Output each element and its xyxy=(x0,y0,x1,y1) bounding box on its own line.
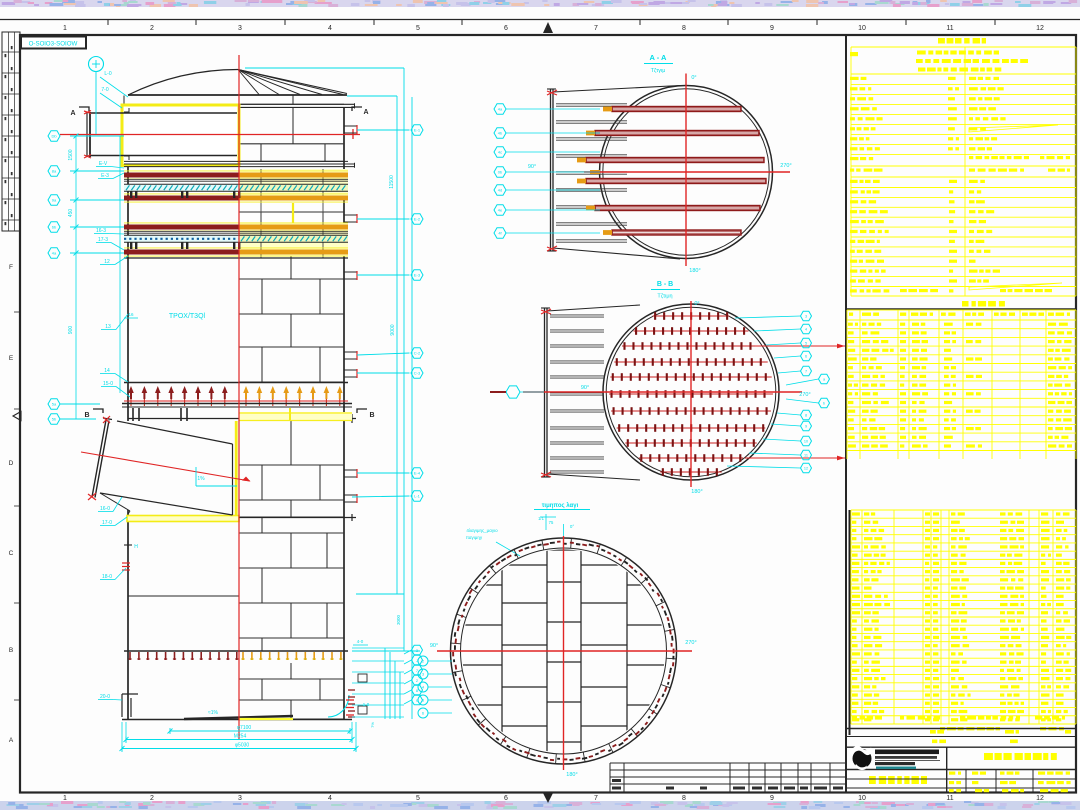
svg-text:D: D xyxy=(9,460,14,467)
svg-text:B: B xyxy=(9,647,13,654)
svg-text:180°: 180° xyxy=(566,772,577,778)
svg-text:8: 8 xyxy=(805,414,807,418)
svg-text:Tζτγιμ: Tζτγιμ xyxy=(651,68,666,74)
svg-text:9: 9 xyxy=(805,425,807,429)
svg-text:TPOX/T3Ql: TPOX/T3Ql xyxy=(169,313,206,320)
svg-text:1: 1 xyxy=(63,795,67,802)
svg-text:B: B xyxy=(84,412,89,419)
svg-text:8a: 8a xyxy=(52,169,57,174)
svg-text:4a: 4a xyxy=(52,251,57,256)
svg-text:4c: 4c xyxy=(498,150,502,155)
svg-text:12: 12 xyxy=(804,467,808,471)
svg-text:φ5030: φ5030 xyxy=(235,743,250,749)
svg-text:9a: 9a xyxy=(52,198,57,203)
svg-text:E: E xyxy=(9,355,14,362)
svg-text:8: 8 xyxy=(682,25,686,32)
svg-text:4λαγιμης_μαγιο: 4λαγιμης_μαγιο xyxy=(466,528,498,533)
svg-text:C-2: C-2 xyxy=(414,351,421,356)
svg-text:4b: 4b xyxy=(498,131,503,136)
svg-text:90°: 90° xyxy=(430,643,438,649)
svg-text:0°: 0° xyxy=(691,75,696,81)
svg-text:0b: 0b xyxy=(498,170,503,175)
svg-text:270°: 270° xyxy=(780,163,791,169)
svg-text:L-0: L-0 xyxy=(104,71,111,77)
svg-text:E-1: E-1 xyxy=(414,128,421,133)
svg-text:Tζτιμη: Tζτιμη xyxy=(657,294,672,300)
svg-text:M254: M254 xyxy=(234,734,247,740)
svg-text:F: F xyxy=(9,264,13,271)
svg-text:9000: 9000 xyxy=(390,324,396,335)
svg-text:E-2: E-2 xyxy=(414,217,421,222)
svg-text:270°: 270° xyxy=(685,640,696,646)
svg-text:τιμηπος λαγι: τιμηπος λαγι xyxy=(542,503,579,509)
svg-text:0°: 0° xyxy=(570,524,575,529)
svg-text:5: 5 xyxy=(416,25,420,32)
svg-text:90°: 90° xyxy=(581,385,589,391)
svg-text:7%: 7% xyxy=(370,722,375,728)
svg-text:4: 4 xyxy=(328,25,332,32)
svg-text:900: 900 xyxy=(68,326,74,335)
svg-text:6: 6 xyxy=(504,25,508,32)
svg-text:5: 5 xyxy=(805,342,807,346)
svg-text:180°: 180° xyxy=(691,489,702,495)
svg-text:1: 1 xyxy=(63,25,67,32)
svg-text:10: 10 xyxy=(804,440,808,444)
svg-text:3: 3 xyxy=(805,315,807,319)
svg-text:E-4: E-4 xyxy=(414,471,421,476)
svg-text:Db: Db xyxy=(51,134,57,139)
svg-text:1/1: 1/1 xyxy=(538,516,544,521)
svg-text:παγιμηγ: παγιμηγ xyxy=(466,535,483,540)
svg-text:12: 12 xyxy=(1036,25,1044,32)
svg-text:8: 8 xyxy=(682,795,686,802)
svg-text:A: A xyxy=(70,110,75,117)
svg-text:450: 450 xyxy=(68,209,74,218)
svg-text:C: C xyxy=(9,550,14,557)
svg-text:5b: 5b xyxy=(52,417,57,422)
svg-text:90°: 90° xyxy=(528,164,536,170)
svg-text:11: 11 xyxy=(946,795,953,802)
svg-text:3000: 3000 xyxy=(396,614,401,625)
svg-text:2: 2 xyxy=(150,795,154,802)
svg-text:4d: 4d xyxy=(498,188,502,193)
svg-text:1%: 1% xyxy=(197,476,205,482)
svg-text:7-0: 7-0 xyxy=(101,87,108,93)
svg-text:10: 10 xyxy=(858,795,866,802)
svg-text:180°: 180° xyxy=(689,268,700,274)
svg-text:6: 6 xyxy=(805,355,807,359)
svg-text:270°: 270° xyxy=(799,392,810,398)
svg-text:B - B: B - B xyxy=(657,281,673,288)
svg-text:7: 7 xyxy=(594,25,598,32)
svg-text:1-0: 1-0 xyxy=(363,702,370,707)
svg-text:A - A: A - A xyxy=(650,53,668,62)
svg-text:7: 7 xyxy=(805,370,807,374)
svg-text:16: 16 xyxy=(128,312,134,317)
svg-text:75: 75 xyxy=(549,520,554,525)
svg-text:11: 11 xyxy=(946,25,953,32)
svg-text:3: 3 xyxy=(238,795,242,802)
svg-text:b: b xyxy=(823,402,825,406)
svg-text:A: A xyxy=(9,737,14,744)
svg-text:6: 6 xyxy=(504,795,508,802)
svg-text:2: 2 xyxy=(150,25,154,32)
svg-text:0°: 0° xyxy=(694,301,699,307)
svg-text:4-0: 4-0 xyxy=(357,639,364,644)
svg-text:φ7100: φ7100 xyxy=(237,725,252,731)
svg-text:C-3: C-3 xyxy=(414,371,421,376)
svg-text:10: 10 xyxy=(858,25,866,32)
svg-text:12: 12 xyxy=(1036,795,1044,802)
svg-text:H: H xyxy=(134,544,138,550)
svg-text:4: 4 xyxy=(328,795,332,802)
svg-text:E-3: E-3 xyxy=(414,273,421,278)
svg-text:11500: 11500 xyxy=(389,175,395,189)
svg-text:9: 9 xyxy=(770,25,774,32)
svg-text:≈1%: ≈1% xyxy=(208,710,219,716)
svg-text:4e: 4e xyxy=(498,208,503,213)
svg-text:6b: 6b xyxy=(52,225,57,230)
svg-text:A: A xyxy=(363,109,368,116)
svg-text:B: B xyxy=(369,412,374,419)
svg-text:5a: 5a xyxy=(52,402,57,407)
svg-text:5: 5 xyxy=(416,795,420,802)
svg-text:4a: 4a xyxy=(498,107,503,112)
svg-text:9: 9 xyxy=(770,795,774,802)
svg-text:3: 3 xyxy=(238,25,242,32)
svg-text:O-SOlO3-SOIOW: O-SOlO3-SOIOW xyxy=(29,41,78,48)
svg-text:4: 4 xyxy=(805,328,807,332)
svg-text:1500: 1500 xyxy=(68,149,74,160)
svg-text:L-1: L-1 xyxy=(414,494,421,499)
svg-text:7: 7 xyxy=(594,795,598,802)
svg-text:11: 11 xyxy=(804,454,808,458)
